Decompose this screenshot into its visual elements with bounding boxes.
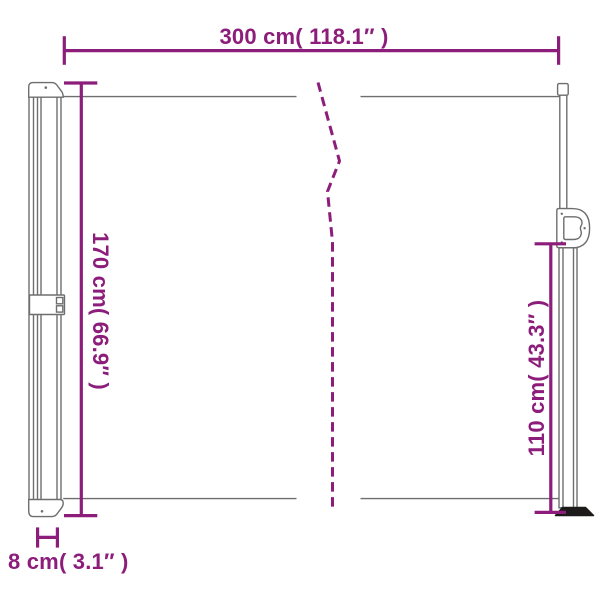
height-right-dimension-label: 110 cm( 43.3″ ) xyxy=(524,278,550,478)
break-line xyxy=(318,83,340,509)
dimension-lines xyxy=(38,36,566,547)
cassette-bottom-cap xyxy=(29,500,64,517)
support-pole xyxy=(556,84,594,516)
depth-dimension-label: 8 cm( 3.1″ ) xyxy=(8,549,129,575)
screw-dot xyxy=(583,227,585,229)
screw-dot xyxy=(45,86,48,89)
awning-fabric xyxy=(63,97,560,499)
screw-dot xyxy=(561,213,563,215)
height-left-dimension-label: 170 cm( 66.9″ ) xyxy=(87,211,113,411)
pole-top-cap xyxy=(558,84,569,96)
pole-lower-tube xyxy=(559,248,577,508)
product-dimension-diagram: 300 cm( 118.1″ ) 170 cm( 66.9″ ) 110 cm(… xyxy=(0,0,600,600)
width-dimension-label: 300 cm( 118.1″ ) xyxy=(178,24,430,50)
pole-handle xyxy=(557,209,590,248)
post-clamp xyxy=(30,295,65,315)
cassette-post xyxy=(29,83,65,517)
screw-dot xyxy=(41,510,44,513)
pole-upper-tube xyxy=(560,95,567,208)
depth-dimension-line xyxy=(38,527,58,547)
cassette-top-cap xyxy=(29,83,64,98)
